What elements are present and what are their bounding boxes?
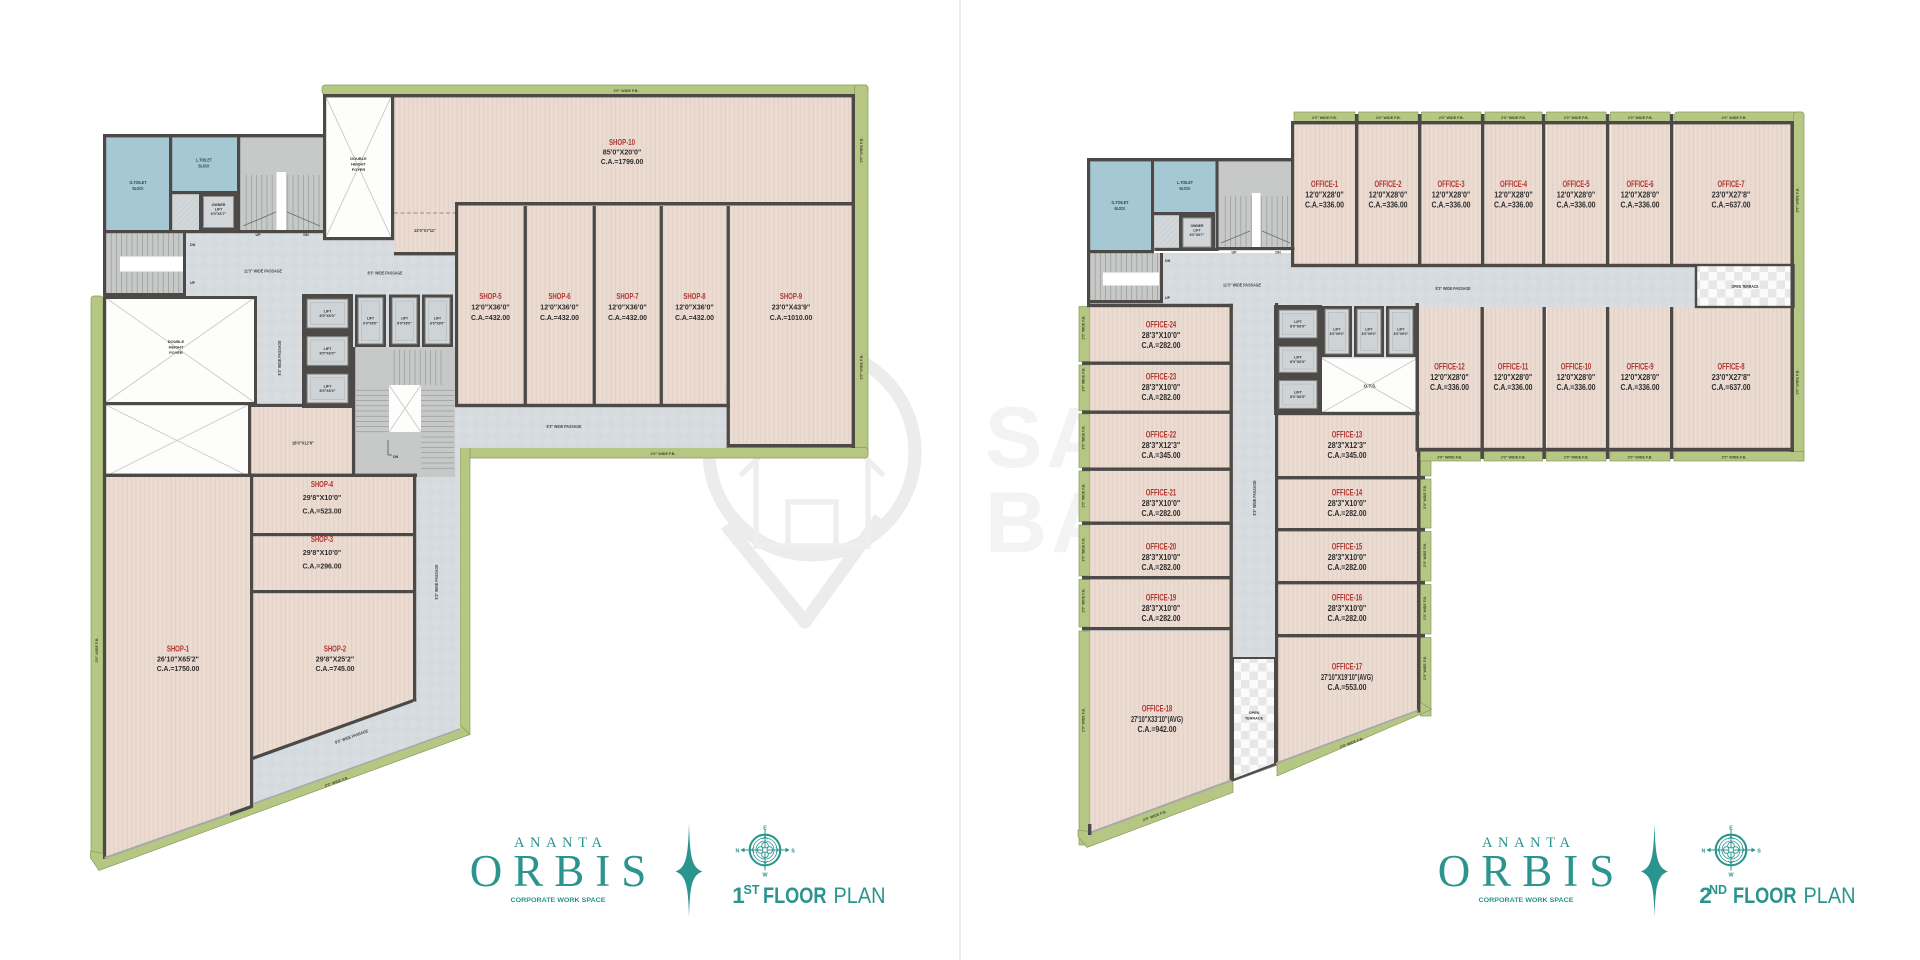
- svg-text:OFFICE-18: OFFICE-18: [1142, 703, 1172, 714]
- svg-text:UP: UP: [1231, 251, 1237, 255]
- svg-text:29'8"X25'2": 29'8"X25'2": [316, 654, 355, 663]
- svg-text:C.A.=282.00: C.A.=282.00: [1141, 614, 1181, 623]
- svg-text:12'0"X36'0": 12'0"X36'0": [471, 302, 510, 311]
- svg-text:DOUBLE: DOUBLE: [168, 339, 185, 344]
- svg-text:BLOCK: BLOCK: [1115, 206, 1127, 211]
- svg-text:2'0" WIDE F.B.: 2'0" WIDE F.B.: [1423, 485, 1427, 509]
- svg-text:23'0"X27'8": 23'0"X27'8": [1712, 373, 1751, 382]
- svg-text:LIFT: LIFT: [1193, 229, 1201, 233]
- svg-text:C.A.=282.00: C.A.=282.00: [1327, 509, 1367, 518]
- svg-text:LIFT: LIFT: [367, 317, 375, 321]
- svg-text:PLAN: PLAN: [834, 883, 886, 908]
- svg-text:OFFICE-2: OFFICE-2: [1374, 178, 1401, 189]
- svg-text:23'0"X27'8": 23'0"X27'8": [1712, 190, 1751, 199]
- svg-text:28'3"X10'0": 28'3"X10'0": [1142, 331, 1181, 340]
- svg-text:12'0"X28'0": 12'0"X28'0": [1430, 373, 1469, 382]
- svg-text:LIFT: LIFT: [401, 317, 409, 321]
- svg-text:OFFICE-22: OFFICE-22: [1146, 429, 1176, 440]
- svg-text:SHOP-9: SHOP-9: [780, 292, 803, 301]
- svg-text:2'0" WIDE F.B.: 2'0" WIDE F.B.: [1423, 596, 1427, 620]
- svg-text:18'0"X12'9": 18'0"X12'9": [292, 441, 314, 446]
- svg-text:2'0" WIDE F.B.: 2'0" WIDE F.B.: [1082, 316, 1086, 340]
- svg-text:8'3" WIDE PASSAGE: 8'3" WIDE PASSAGE: [1252, 480, 1257, 515]
- svg-text:C.A.=336.00: C.A.=336.00: [1620, 383, 1660, 392]
- svg-text:FLOOR: FLOOR: [763, 883, 827, 908]
- svg-text:2'0" WIDE F.B.: 2'0" WIDE F.B.: [1501, 455, 1526, 459]
- svg-text:CORPORATE WORK SPACE: CORPORATE WORK SPACE: [511, 897, 607, 904]
- svg-text:28'3"X10'0": 28'3"X10'0": [1142, 604, 1181, 613]
- svg-text:2'0" WIDE F.B.: 2'0" WIDE F.B.: [1082, 484, 1086, 508]
- svg-text:6'0"X9'0": 6'0"X9'0": [397, 321, 412, 325]
- svg-text:2'0" WIDE F.B.: 2'0" WIDE F.B.: [1312, 116, 1337, 120]
- svg-text:SHOP-10: SHOP-10: [609, 138, 636, 147]
- svg-text:C.A.=336.00: C.A.=336.00: [1494, 201, 1534, 210]
- svg-text:2'0" WIDE F.B.: 2'0" WIDE F.B.: [614, 89, 639, 93]
- svg-text:6'0"X9'0": 6'0"X9'0": [363, 321, 378, 325]
- svg-text:C.A.=336.00: C.A.=336.00: [1556, 201, 1596, 210]
- svg-text:UP: UP: [190, 281, 196, 285]
- svg-text:2'0" WIDE F.B.: 2'0" WIDE F.B.: [1082, 538, 1086, 562]
- svg-text:HEIGHT: HEIGHT: [351, 162, 366, 167]
- svg-text:LIFT: LIFT: [1294, 355, 1303, 359]
- svg-text:8'0"X6'0": 8'0"X6'0": [1290, 360, 1306, 364]
- svg-text:LIFT: LIFT: [1397, 327, 1405, 331]
- svg-text:8'3" WIDE PASSAGE: 8'3" WIDE PASSAGE: [1436, 286, 1471, 291]
- svg-text:OFFICE-14: OFFICE-14: [1332, 487, 1363, 498]
- svg-text:L.TOILET: L.TOILET: [196, 158, 212, 163]
- svg-text:C.A.=296.00: C.A.=296.00: [302, 561, 341, 570]
- svg-text:OFFICE-13: OFFICE-13: [1332, 429, 1362, 440]
- svg-text:8'0"X6'0": 8'0"X6'0": [320, 352, 336, 356]
- svg-text:29'8"X10'0": 29'8"X10'0": [303, 548, 342, 557]
- svg-text:OFFICE-10: OFFICE-10: [1561, 361, 1591, 372]
- svg-text:FOYER: FOYER: [352, 167, 366, 172]
- svg-text:C.A.=942.00: C.A.=942.00: [1138, 725, 1177, 734]
- svg-text:C.A.=637.00: C.A.=637.00: [1711, 201, 1751, 210]
- svg-text:N: N: [736, 848, 740, 854]
- svg-text:PLAN: PLAN: [1804, 883, 1856, 908]
- svg-text:12'0"X28'0": 12'0"X28'0": [1557, 373, 1596, 382]
- svg-text:E: E: [763, 826, 767, 832]
- svg-text:OPEN TERRACE: OPEN TERRACE: [1732, 284, 1759, 289]
- svg-text:28'3"X10'0": 28'3"X10'0": [1328, 553, 1367, 562]
- svg-text:OFFICE-20: OFFICE-20: [1146, 541, 1176, 552]
- svg-text:28'3"X10'0": 28'3"X10'0": [1142, 383, 1181, 392]
- svg-text:8'3" WIDE PASSAGE: 8'3" WIDE PASSAGE: [547, 424, 582, 429]
- svg-text:28'3"X12'3": 28'3"X12'3": [1328, 441, 1367, 450]
- svg-text:6'0"X9'0": 6'0"X9'0": [430, 321, 445, 325]
- svg-text:SHOP-5: SHOP-5: [479, 292, 502, 301]
- svg-text:C.A.=637.00: C.A.=637.00: [1711, 383, 1751, 392]
- svg-text:DN: DN: [190, 243, 196, 247]
- svg-text:28'3"X12'3": 28'3"X12'3": [1142, 441, 1181, 450]
- svg-text:BLOCK: BLOCK: [133, 186, 145, 191]
- svg-text:C.A.=282.00: C.A.=282.00: [1327, 614, 1367, 623]
- svg-text:12'0"X36'0": 12'0"X36'0": [675, 302, 714, 311]
- svg-text:C.A.=282.00: C.A.=282.00: [1141, 563, 1181, 572]
- svg-text:C.A.=336.00: C.A.=336.00: [1620, 201, 1660, 210]
- svg-text:LIFT: LIFT: [1333, 327, 1341, 331]
- svg-text:2'0" WIDE F.B.: 2'0" WIDE F.B.: [1082, 589, 1086, 613]
- svg-text:FOYER: FOYER: [169, 350, 183, 355]
- svg-text:N: N: [1702, 848, 1706, 854]
- svg-text:C.A.=282.00: C.A.=282.00: [1141, 509, 1181, 518]
- svg-text:LIFT: LIFT: [1365, 327, 1373, 331]
- svg-text:27'10"X19'10"(AVG): 27'10"X19'10"(AVG): [1321, 673, 1373, 682]
- svg-text:LIFT: LIFT: [324, 309, 333, 313]
- svg-text:C.A.=1799.00: C.A.=1799.00: [601, 157, 644, 166]
- svg-text:11'3" WIDE PASSAGE: 11'3" WIDE PASSAGE: [244, 269, 282, 274]
- svg-text:12'0"X28'0": 12'0"X28'0": [1305, 190, 1344, 199]
- svg-text:2'0" WIDE F.B.: 2'0" WIDE F.B.: [651, 452, 676, 456]
- svg-text:OFFICE-12: OFFICE-12: [1434, 361, 1464, 372]
- svg-text:85'0"X20'0": 85'0"X20'0": [603, 148, 642, 157]
- svg-text:12'0"X7'11": 12'0"X7'11": [414, 228, 436, 233]
- svg-text:6'0"X9'0": 6'0"X9'0": [1330, 332, 1345, 336]
- svg-text:8'3" WIDE PASSAGE: 8'3" WIDE PASSAGE: [277, 340, 282, 375]
- svg-text:FLOOR: FLOOR: [1733, 883, 1797, 908]
- svg-text:HEIGHT: HEIGHT: [169, 345, 184, 350]
- svg-text:OWNER: OWNER: [212, 203, 226, 207]
- svg-text:12'0"X28'0": 12'0"X28'0": [1494, 190, 1533, 199]
- svg-text:OFFICE-7: OFFICE-7: [1717, 178, 1744, 189]
- svg-text:8'0"X6'0": 8'0"X6'0": [1290, 395, 1306, 399]
- svg-text:27'10"X33'10"(AVG): 27'10"X33'10"(AVG): [1131, 715, 1183, 724]
- svg-text:OFFICE-6: OFFICE-6: [1626, 178, 1653, 189]
- svg-text:C.A.=745.00: C.A.=745.00: [315, 664, 354, 673]
- svg-text:2'0" WIDE F.B.: 2'0" WIDE F.B.: [1082, 426, 1086, 450]
- svg-text:C.A.=553.00: C.A.=553.00: [1328, 683, 1367, 692]
- svg-text:6'0"X6'7": 6'0"X6'7": [1190, 233, 1205, 237]
- svg-text:TERRACE: TERRACE: [1245, 717, 1264, 721]
- svg-text:2'0" WIDE F.B.: 2'0" WIDE F.B.: [1722, 116, 1747, 120]
- svg-text:28'3"X10'0": 28'3"X10'0": [1328, 604, 1367, 613]
- svg-text:C.A.=1750.00: C.A.=1750.00: [157, 664, 200, 673]
- svg-text:UP: UP: [255, 233, 261, 237]
- svg-text:LIFT: LIFT: [1294, 390, 1303, 394]
- svg-text:2'0" WIDE F.B.: 2'0" WIDE F.B.: [860, 138, 864, 163]
- svg-text:DN: DN: [1165, 259, 1171, 263]
- svg-text:C.A.=1010.00: C.A.=1010.00: [770, 313, 813, 322]
- svg-text:CORPORATE WORK SPACE: CORPORATE WORK SPACE: [1479, 897, 1575, 904]
- svg-text:OFFICE-8: OFFICE-8: [1717, 361, 1744, 372]
- svg-text:2'0" WIDE F.B.: 2'0" WIDE F.B.: [1423, 543, 1427, 567]
- svg-text:OFFICE-15: OFFICE-15: [1332, 541, 1362, 552]
- svg-text:OFFICE-17: OFFICE-17: [1332, 661, 1362, 672]
- svg-text:11'3" WIDE PASSAGE: 11'3" WIDE PASSAGE: [1223, 283, 1261, 288]
- svg-text:OFFICE-23: OFFICE-23: [1146, 371, 1176, 382]
- svg-text:DN: DN: [303, 233, 309, 237]
- svg-text:C.A.=336.00: C.A.=336.00: [1431, 201, 1471, 210]
- svg-text:SHOP-3: SHOP-3: [311, 535, 334, 544]
- svg-text:26'10"X65'2": 26'10"X65'2": [157, 654, 199, 663]
- svg-text:SHOP-8: SHOP-8: [683, 292, 706, 301]
- svg-text:6'0"X9'0": 6'0"X9'0": [1362, 332, 1377, 336]
- svg-text:OFFICE-3: OFFICE-3: [1437, 178, 1464, 189]
- svg-text:C.A.=282.00: C.A.=282.00: [1327, 563, 1367, 572]
- svg-text:OFFICE-11: OFFICE-11: [1498, 361, 1528, 372]
- svg-text:6'0"X9'0": 6'0"X9'0": [1394, 332, 1409, 336]
- svg-text:SHOP-7: SHOP-7: [616, 292, 639, 301]
- svg-text:L.TOILET: L.TOILET: [1177, 180, 1193, 185]
- svg-text:C.A.=432.00: C.A.=432.00: [471, 313, 510, 322]
- svg-text:12'0"X28'0": 12'0"X28'0": [1621, 373, 1660, 382]
- svg-text:2'0" WIDE F.B.: 2'0" WIDE F.B.: [1376, 116, 1401, 120]
- svg-text:8'3" WIDE PASSAGE: 8'3" WIDE PASSAGE: [368, 271, 403, 276]
- svg-text:8'0"X6'0": 8'0"X6'0": [1290, 325, 1306, 329]
- svg-text:BLOCK: BLOCK: [1180, 186, 1192, 191]
- svg-text:12'0"X36'0": 12'0"X36'0": [540, 302, 579, 311]
- svg-text:2'0" WIDE F.B.: 2'0" WIDE F.B.: [1628, 116, 1653, 120]
- svg-text:2'0" WIDE F.B.: 2'0" WIDE F.B.: [1796, 370, 1800, 395]
- svg-text:SHOP-6: SHOP-6: [548, 292, 571, 301]
- svg-text:12'0"X28'0": 12'0"X28'0": [1494, 373, 1533, 382]
- svg-text:S: S: [1757, 848, 1761, 854]
- svg-text:12'0"X28'0": 12'0"X28'0": [1432, 190, 1471, 199]
- svg-text:28'3"X10'0": 28'3"X10'0": [1328, 499, 1367, 508]
- svg-text:ST: ST: [744, 883, 760, 897]
- svg-text:C.A.=345.00: C.A.=345.00: [1327, 451, 1367, 460]
- svg-text:OWNER: OWNER: [1191, 224, 1205, 228]
- svg-text:C.A.=523.00: C.A.=523.00: [302, 506, 341, 515]
- svg-text:2'0" WIDE F.B.: 2'0" WIDE F.B.: [1501, 116, 1526, 120]
- svg-text:OFFICE-4: OFFICE-4: [1500, 178, 1528, 189]
- svg-text:OFFICE-21: OFFICE-21: [1146, 487, 1176, 498]
- svg-text:BLOCK: BLOCK: [199, 164, 211, 169]
- svg-text:12'0"X28'0": 12'0"X28'0": [1369, 190, 1408, 199]
- svg-text:OFFICE-5: OFFICE-5: [1562, 178, 1589, 189]
- svg-text:8'0"X6'0": 8'0"X6'0": [320, 389, 336, 393]
- svg-text:8'3" WIDE PASSAGE: 8'3" WIDE PASSAGE: [434, 564, 439, 599]
- svg-text:OFFICE-16: OFFICE-16: [1332, 592, 1362, 603]
- svg-text:2'0" WIDE F.B.: 2'0" WIDE F.B.: [860, 355, 864, 380]
- svg-text:G.TOILET: G.TOILET: [130, 180, 147, 185]
- svg-text:SHOP-4: SHOP-4: [311, 480, 334, 489]
- svg-text:LIFT: LIFT: [324, 347, 333, 351]
- svg-text:2'0" WIDE F.B.: 2'0" WIDE F.B.: [1796, 188, 1800, 213]
- svg-text:ND: ND: [1709, 883, 1727, 897]
- svg-text:29'8"X10'0": 29'8"X10'0": [303, 493, 342, 502]
- svg-text:2'0" WIDE F.B.: 2'0" WIDE F.B.: [1423, 656, 1427, 680]
- svg-text:2'0" WIDE F.B.: 2'0" WIDE F.B.: [1722, 455, 1747, 459]
- svg-text:LIFT: LIFT: [434, 317, 442, 321]
- svg-text:OFFICE-19: OFFICE-19: [1146, 592, 1176, 603]
- svg-text:12'0"X28'0": 12'0"X28'0": [1557, 190, 1596, 199]
- svg-text:C.A.=336.00: C.A.=336.00: [1430, 383, 1470, 392]
- svg-text:2'0" WIDE F.B.: 2'0" WIDE F.B.: [1437, 455, 1462, 459]
- svg-text:DN: DN: [393, 455, 399, 459]
- svg-text:OFFICE-1: OFFICE-1: [1311, 178, 1338, 189]
- svg-text:C.A.=345.00: C.A.=345.00: [1141, 451, 1181, 460]
- svg-text:ORBIS: ORBIS: [470, 846, 658, 896]
- svg-text:UP: UP: [1165, 296, 1171, 300]
- svg-text:2'0" WIDE F.B.: 2'0" WIDE F.B.: [1564, 116, 1589, 120]
- svg-text:OPEN: OPEN: [1249, 711, 1260, 715]
- svg-text:C.A.=336.00: C.A.=336.00: [1556, 383, 1596, 392]
- svg-text:LIFT: LIFT: [215, 208, 223, 212]
- svg-text:LIFT: LIFT: [1294, 320, 1303, 324]
- svg-text:C.A.=432.00: C.A.=432.00: [540, 313, 579, 322]
- svg-text:C.A.=282.00: C.A.=282.00: [1141, 393, 1181, 402]
- svg-text:2'0" WIDE F.B.: 2'0" WIDE F.B.: [1082, 708, 1086, 732]
- svg-text:SHOP-2: SHOP-2: [324, 645, 347, 654]
- svg-text:2'0" WIDE F.B.: 2'0" WIDE F.B.: [1628, 455, 1653, 459]
- svg-text:C.A.=336.00: C.A.=336.00: [1368, 201, 1408, 210]
- svg-text:C.A.=282.00: C.A.=282.00: [1141, 341, 1181, 350]
- svg-text:2'0" WIDE F.B.: 2'0" WIDE F.B.: [1564, 455, 1589, 459]
- svg-text:C.A.=432.00: C.A.=432.00: [675, 313, 714, 322]
- svg-text:8'0"X6'0": 8'0"X6'0": [320, 314, 336, 318]
- svg-text:6'0"X6'7": 6'0"X6'7": [211, 212, 227, 216]
- svg-text:C.A.=336.00: C.A.=336.00: [1305, 201, 1345, 210]
- svg-text:23'0"X43'9": 23'0"X43'9": [772, 302, 811, 311]
- svg-text:OFFICE-9: OFFICE-9: [1626, 361, 1653, 372]
- svg-text:12'0"X36'0": 12'0"X36'0": [608, 302, 647, 311]
- svg-text:2'0" WIDE F.B.: 2'0" WIDE F.B.: [1439, 116, 1464, 120]
- svg-text:28'3"X10'0": 28'3"X10'0": [1142, 499, 1181, 508]
- svg-text:SHOP-1: SHOP-1: [167, 645, 190, 654]
- svg-text:C.A.=336.00: C.A.=336.00: [1493, 383, 1533, 392]
- svg-text:ORBIS: ORBIS: [1438, 846, 1626, 896]
- svg-text:DOUBLE: DOUBLE: [350, 156, 367, 161]
- svg-text:12'0"X28'0": 12'0"X28'0": [1621, 190, 1660, 199]
- svg-text:2'0" WIDE F.B.: 2'0" WIDE F.B.: [95, 638, 99, 663]
- svg-text:OFFICE-24: OFFICE-24: [1146, 319, 1177, 330]
- svg-text:C.A.=432.00: C.A.=432.00: [608, 313, 647, 322]
- svg-text:E: E: [1729, 826, 1733, 832]
- svg-text:DN: DN: [1275, 251, 1281, 255]
- svg-text:O.T.S.: O.T.S.: [1364, 384, 1377, 389]
- svg-text:LIFT: LIFT: [324, 384, 333, 388]
- svg-text:G.TOILET: G.TOILET: [1112, 200, 1129, 205]
- svg-text:2'0" WIDE F.B.: 2'0" WIDE F.B.: [1082, 368, 1086, 392]
- svg-text:S: S: [791, 848, 795, 854]
- svg-text:28'3"X10'0": 28'3"X10'0": [1142, 553, 1181, 562]
